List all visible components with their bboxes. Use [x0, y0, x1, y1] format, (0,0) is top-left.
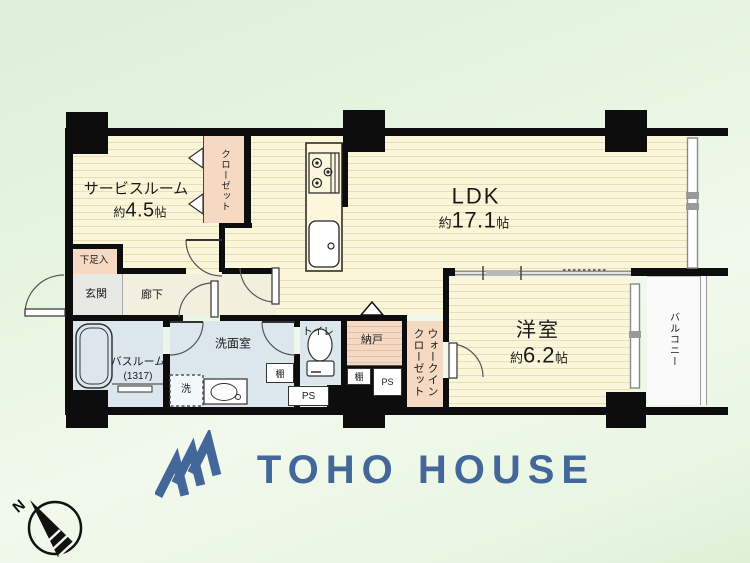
shelf-washroom-label: 棚 [275, 367, 284, 380]
wall-wic-right-b [443, 378, 449, 407]
shelf-storage-label: 棚 [354, 370, 363, 383]
wall-left [65, 128, 73, 415]
bathroom-label: バスルーム [111, 356, 166, 370]
bathroom-size-label: (1317) [124, 371, 153, 384]
logo-text: TOHO HOUSE [257, 448, 595, 493]
entrance-door-icon [25, 275, 65, 316]
wall-serviceroom-bottom-b [222, 268, 276, 274]
closet-label: クローゼット [217, 142, 231, 218]
brand-logo: TOHO HOUSE [0, 425, 750, 515]
pipe-space-1-box: PS [288, 386, 329, 406]
pipe-space-1-label: PS [302, 391, 315, 402]
wall-wet-band-top-b [220, 315, 407, 321]
pipe-space-2-box: PS [373, 368, 402, 396]
washer-space-label: 洗 [181, 384, 191, 397]
western-room-label: 洋室 [516, 319, 560, 344]
shelf-washroom-box: 棚 [266, 363, 294, 383]
toho-house-logo-icon [155, 430, 237, 510]
floor-ldk-extension [276, 274, 443, 315]
wall-balcony-top [631, 268, 728, 276]
pillar-top-right [605, 110, 647, 152]
storage-room-label: 納戸 [361, 334, 383, 348]
pillar-bottom-right [606, 392, 646, 428]
wall-shoebox-right [117, 244, 123, 274]
pillar-top-mid [343, 110, 385, 152]
wall-serviceroom-right [219, 223, 225, 272]
pillar-bottom-left [66, 390, 108, 428]
wall-serviceroom-bottom-a [117, 268, 186, 274]
wall-wic-left [402, 315, 407, 407]
wall-closet-right [244, 136, 251, 228]
balcony-railing [700, 276, 707, 405]
entrance-label: 玄関 [85, 288, 107, 302]
wall-bath-wash-a [163, 321, 170, 327]
wall-kitchen-stub [340, 143, 348, 207]
washroom-label: 洗面室 [215, 337, 251, 352]
walk-in-closet-label: ウォークインクローゼット [411, 323, 439, 401]
toilet-label: トイレ [302, 325, 334, 338]
service-room-label: サービスルーム [84, 181, 189, 200]
wall-wash-toilet-a [294, 321, 300, 327]
hallway-label: 廊下 [141, 289, 163, 303]
wall-wic-right-a [443, 276, 449, 342]
shoe-cabinet-label: 下足入 [80, 255, 109, 267]
western-room-size: 約6.2帖 [510, 341, 568, 369]
wall-western-top-corner [443, 268, 455, 276]
shelf-storage-box: 棚 [347, 368, 371, 385]
pillar-top-left [66, 112, 108, 154]
floor-plan: 棚 棚 PS PS [0, 0, 750, 563]
service-room-size: 約4.5帖 [113, 199, 166, 224]
ldk-size: 約17.1帖 [439, 206, 510, 234]
wall-shoebox-top [65, 244, 123, 249]
balcony-label: バルコニー [666, 308, 681, 370]
pipe-space-2-label: PS [381, 377, 393, 387]
